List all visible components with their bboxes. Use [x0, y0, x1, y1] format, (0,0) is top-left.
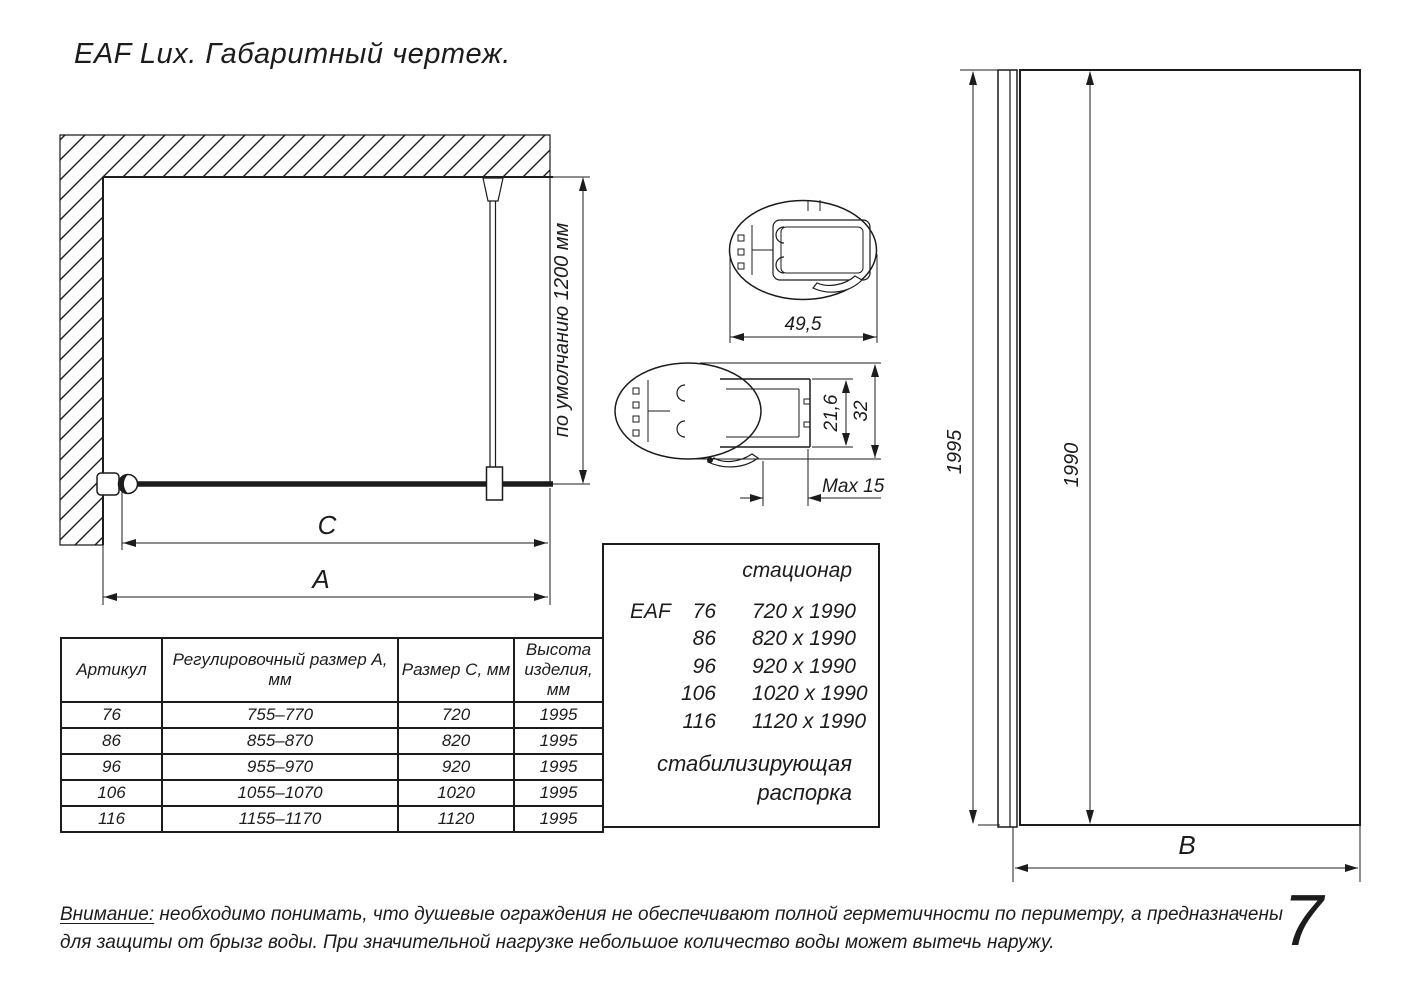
dim-inner-height: 21,6: [812, 379, 853, 447]
dim-a: A: [103, 545, 548, 605]
dim-c-label: C: [318, 510, 337, 540]
table-header-row: Артикул Регулировочный размер А, мм Разм…: [61, 638, 603, 702]
spec-header: стационар: [604, 559, 852, 583]
cell-size-a: 955–970: [162, 754, 398, 780]
cell-height: 1995: [514, 728, 603, 754]
wall-profile-plan: [97, 473, 138, 495]
cell-height: 1995: [514, 806, 603, 832]
spec-size: 76: [666, 600, 716, 624]
spec-rows: EAF 76 720 x 1990 86 820 x 1990 96 920 x…: [604, 598, 878, 736]
cell-article: 116: [61, 806, 162, 832]
cell-article: 76: [61, 702, 162, 728]
profile-width-label: 49,5: [785, 314, 822, 335]
dim-b: B: [1013, 825, 1360, 882]
cell-article: 106: [61, 780, 162, 806]
profile-max-label: Max 15: [822, 476, 885, 497]
cell-size-c: 920: [398, 754, 514, 780]
cell-size-a: 755–770: [162, 702, 398, 728]
spec-row: EAF 76 720 x 1990: [604, 598, 878, 626]
spec-series: EAF: [604, 600, 666, 624]
spec-row: 96 920 x 1990: [604, 653, 878, 681]
warning-note: Внимание: необходимо понимать, что душев…: [60, 901, 1300, 956]
header-height: Высота изделия, мм: [514, 638, 603, 702]
cell-height: 1995: [514, 702, 603, 728]
glass-height-label: 1990: [1061, 443, 1083, 488]
stabilizing-bar-plan: [483, 178, 503, 500]
spec-dims: 720 x 1990: [716, 600, 878, 624]
dim-outer-height: 32: [851, 364, 879, 458]
wall-profile-section: [730, 200, 877, 300]
glass-panel-plan: [112, 177, 590, 486]
side-view: 1995 1990 B: [930, 50, 1390, 900]
cell-height: 1995: [514, 780, 603, 806]
cell-article: 96: [61, 754, 162, 780]
total-height-label: 1995: [944, 429, 966, 474]
cell-size-a: 1155–1170: [162, 806, 398, 832]
header-size-a: Регулировочный размер А, мм: [162, 638, 398, 702]
cell-size-a: 1055–1070: [162, 780, 398, 806]
spec-row: 86 820 x 1990: [604, 626, 878, 654]
dim-a-label: A: [310, 564, 329, 594]
table-row: 96 955–970 920 1995: [61, 754, 603, 780]
profile-outer-label: 32: [851, 400, 872, 422]
profile-inner-label: 21,6: [821, 394, 842, 432]
plan-view: по умолчанию 1200 мм C A: [40, 120, 620, 620]
cell-size-c: 1020: [398, 780, 514, 806]
dim-glass-height: 1990: [1061, 71, 1094, 824]
size-table: Артикул Регулировочный размер А, мм Разм…: [60, 637, 604, 833]
spec-footer-line2: распорка: [604, 778, 852, 807]
spec-footer: стабилизирующая распорка: [604, 749, 878, 807]
wall-profile-side: [998, 70, 1017, 827]
warning-label: Внимание:: [60, 904, 154, 925]
cell-article: 86: [61, 728, 162, 754]
header-article: Артикул: [61, 638, 162, 702]
dim-total-height: 1995: [944, 70, 1000, 825]
page-title: EAF Lux. Габаритный чертеж.: [74, 38, 511, 71]
spec-row: 106 1020 x 1990: [604, 681, 878, 709]
spec-dims: 1020 x 1990: [716, 682, 878, 706]
table-row: 86 855–870 820 1995: [61, 728, 603, 754]
spec-footer-line1: стабилизирующая: [604, 749, 852, 778]
spec-dims: 820 x 1990: [716, 627, 878, 651]
spec-dims: 920 x 1990: [716, 655, 878, 679]
cell-size-c: 820: [398, 728, 514, 754]
cell-height: 1995: [514, 754, 603, 780]
bar-length-label: по умолчанию 1200 мм: [551, 223, 573, 438]
cell-size-a: 855–870: [162, 728, 398, 754]
spec-size: 106: [666, 682, 716, 706]
spec-size: 116: [666, 710, 716, 734]
spec-row: 116 1120 x 1990: [604, 708, 878, 736]
table-row: 76 755–770 720 1995: [61, 702, 603, 728]
spec-size: 86: [666, 627, 716, 651]
table-row: 106 1055–1070 1020 1995: [61, 780, 603, 806]
dim-c: C: [122, 488, 550, 605]
cell-size-c: 1120: [398, 806, 514, 832]
spec-dims: 1120 x 1990: [716, 710, 878, 734]
dim-b-label: B: [1178, 830, 1195, 860]
spec-size: 96: [666, 655, 716, 679]
cell-size-c: 720: [398, 702, 514, 728]
header-size-c: Размер С, мм: [398, 638, 514, 702]
profile-sections: 49,5 21,6 32: [600, 180, 900, 520]
dim-max-adjust: Max 15: [740, 449, 885, 506]
dim-bar-length: по умолчанию 1200 мм: [551, 177, 587, 484]
spec-box: стационар EAF 76 720 x 1990 86 820 x 199…: [602, 543, 880, 828]
warning-line2: для защиты от брызг воды. При значительн…: [60, 932, 1054, 953]
drawing-page: EAF Lux. Габаритный чертеж.: [0, 0, 1415, 1000]
page-number: 7: [1283, 880, 1323, 962]
table-row: 116 1155–1170 1120 1995: [61, 806, 603, 832]
warning-line1: необходимо понимать, что душевые огражде…: [154, 904, 1283, 925]
